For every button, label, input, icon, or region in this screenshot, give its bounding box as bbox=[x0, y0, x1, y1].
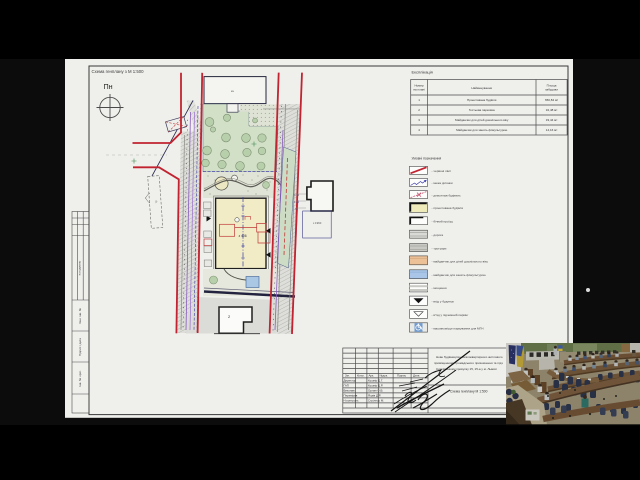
svg-text:кн: кн bbox=[231, 89, 234, 93]
svg-text:забудови: забудови bbox=[545, 88, 558, 92]
svg-text:- межа ділянки: - межа ділянки bbox=[432, 181, 453, 185]
svg-text:Зам. інв. №: Зам. інв. № bbox=[78, 307, 82, 324]
svg-text:Кушнір Д.Р.: Кушнір Д.Р. bbox=[368, 384, 383, 388]
svg-text:Схема генплану з М 1:500: Схема генплану з М 1:500 bbox=[92, 69, 145, 74]
svg-text:Директор: Директор bbox=[344, 379, 357, 383]
svg-text:Умовні позначення: Умовні позначення bbox=[412, 157, 442, 161]
svg-text:Майданчик для занять фізкульту: Майданчик для занять фізкультурою bbox=[456, 128, 508, 132]
svg-text:Гостьова парковка: Гостьова парковка bbox=[469, 108, 495, 112]
svg-text:Кушнір Д.Г.: Кушнір Д.Г. bbox=[368, 379, 383, 383]
svg-text:- в'їзд у підземний паркінг: - в'їзд у підземний паркінг bbox=[432, 313, 470, 317]
svg-text:Підпис і дата: Підпис і дата bbox=[78, 338, 82, 356]
svg-text:з 1960: з 1960 bbox=[313, 221, 322, 225]
svg-text:Арк.: Арк. bbox=[369, 374, 375, 378]
svg-text:32,48 м²: 32,48 м² bbox=[546, 108, 557, 112]
svg-text:на плані: на плані bbox=[413, 88, 425, 92]
svg-text:Перевірив: Перевірив bbox=[344, 394, 358, 398]
svg-text:33,44 м²: 33,44 м² bbox=[546, 118, 557, 122]
svg-text:Н.контроль: Н.контроль bbox=[344, 399, 360, 403]
svg-text:Зм.: Зм. bbox=[345, 374, 350, 378]
svg-text:- червоні лінії: - червоні лінії bbox=[432, 169, 451, 173]
svg-text:Схема генплану М 1:500: Схема генплану М 1:500 bbox=[450, 390, 488, 394]
svg-text:- демонтаж будівель: - демонтаж будівель bbox=[432, 193, 462, 197]
svg-text:0.75: 0.75 bbox=[294, 193, 300, 197]
svg-text:Інв. № ориг.: Інв. № ориг. bbox=[78, 370, 82, 387]
svg-text:- машиномісце паркування для М: - машиномісце паркування для МГН bbox=[432, 326, 484, 330]
svg-text:№док.: №док. bbox=[380, 374, 389, 378]
svg-text:з 406: з 406 bbox=[239, 234, 247, 238]
svg-text:- вхід у будинок: - вхід у будинок bbox=[432, 300, 455, 304]
svg-text:Дата: Дата bbox=[413, 374, 420, 378]
svg-text:- дорога: - дорога bbox=[432, 233, 444, 237]
svg-text:Найменування: Найменування bbox=[471, 86, 492, 90]
svg-text:650,84 м²: 650,84 м² bbox=[545, 98, 558, 102]
svg-text:- майданчик для занять фізкуль: - майданчик для занять фізкультурою bbox=[432, 273, 487, 277]
svg-text:Проектована будівля: Проектована будівля bbox=[467, 98, 497, 102]
svg-text:Пн: Пн bbox=[104, 82, 113, 91]
svg-text:погоджено: погоджено bbox=[78, 260, 82, 275]
svg-text:Орлан О.В.: Орлан О.В. bbox=[368, 389, 383, 393]
svg-text:приміщеннями громадського приз: приміщеннями громадського призначення та… bbox=[434, 361, 503, 365]
svg-text:- мощення: - мощення bbox=[432, 286, 447, 290]
svg-text:Кільк.: Кільк. bbox=[357, 374, 365, 378]
svg-text:- бічний проїзд: - бічний проїзд bbox=[432, 220, 453, 224]
svg-text:Підпис: Підпис bbox=[397, 374, 407, 378]
svg-text:Стрілець М.: Стрілець М. bbox=[368, 399, 384, 403]
svg-text:- тротуари: - тротуари bbox=[432, 247, 447, 251]
svg-text:Яцків Д.Р.: Яцків Д.Р. bbox=[368, 394, 381, 398]
svg-text:Майданчик для дітей дошкільног: Майданчик для дітей дошкільного віку bbox=[455, 118, 509, 122]
svg-text:1.20: 1.20 bbox=[294, 200, 300, 204]
svg-text:ГАП: ГАП bbox=[344, 384, 349, 388]
svg-text:Експлікація: Експлікація bbox=[412, 70, 433, 75]
svg-text:- проектована будівля: - проектована будівля bbox=[432, 206, 464, 210]
svg-text:Нове будівництво багатоквартир: Нове будівництво багатоквартирного житло… bbox=[436, 355, 503, 359]
svg-text:- майданчик для дітей дошкільн: - майданчик для дітей дошкільного віку bbox=[432, 259, 489, 263]
svg-text:14,16 м²: 14,16 м² bbox=[546, 128, 557, 132]
svg-text:Виконав: Виконав bbox=[344, 389, 356, 393]
